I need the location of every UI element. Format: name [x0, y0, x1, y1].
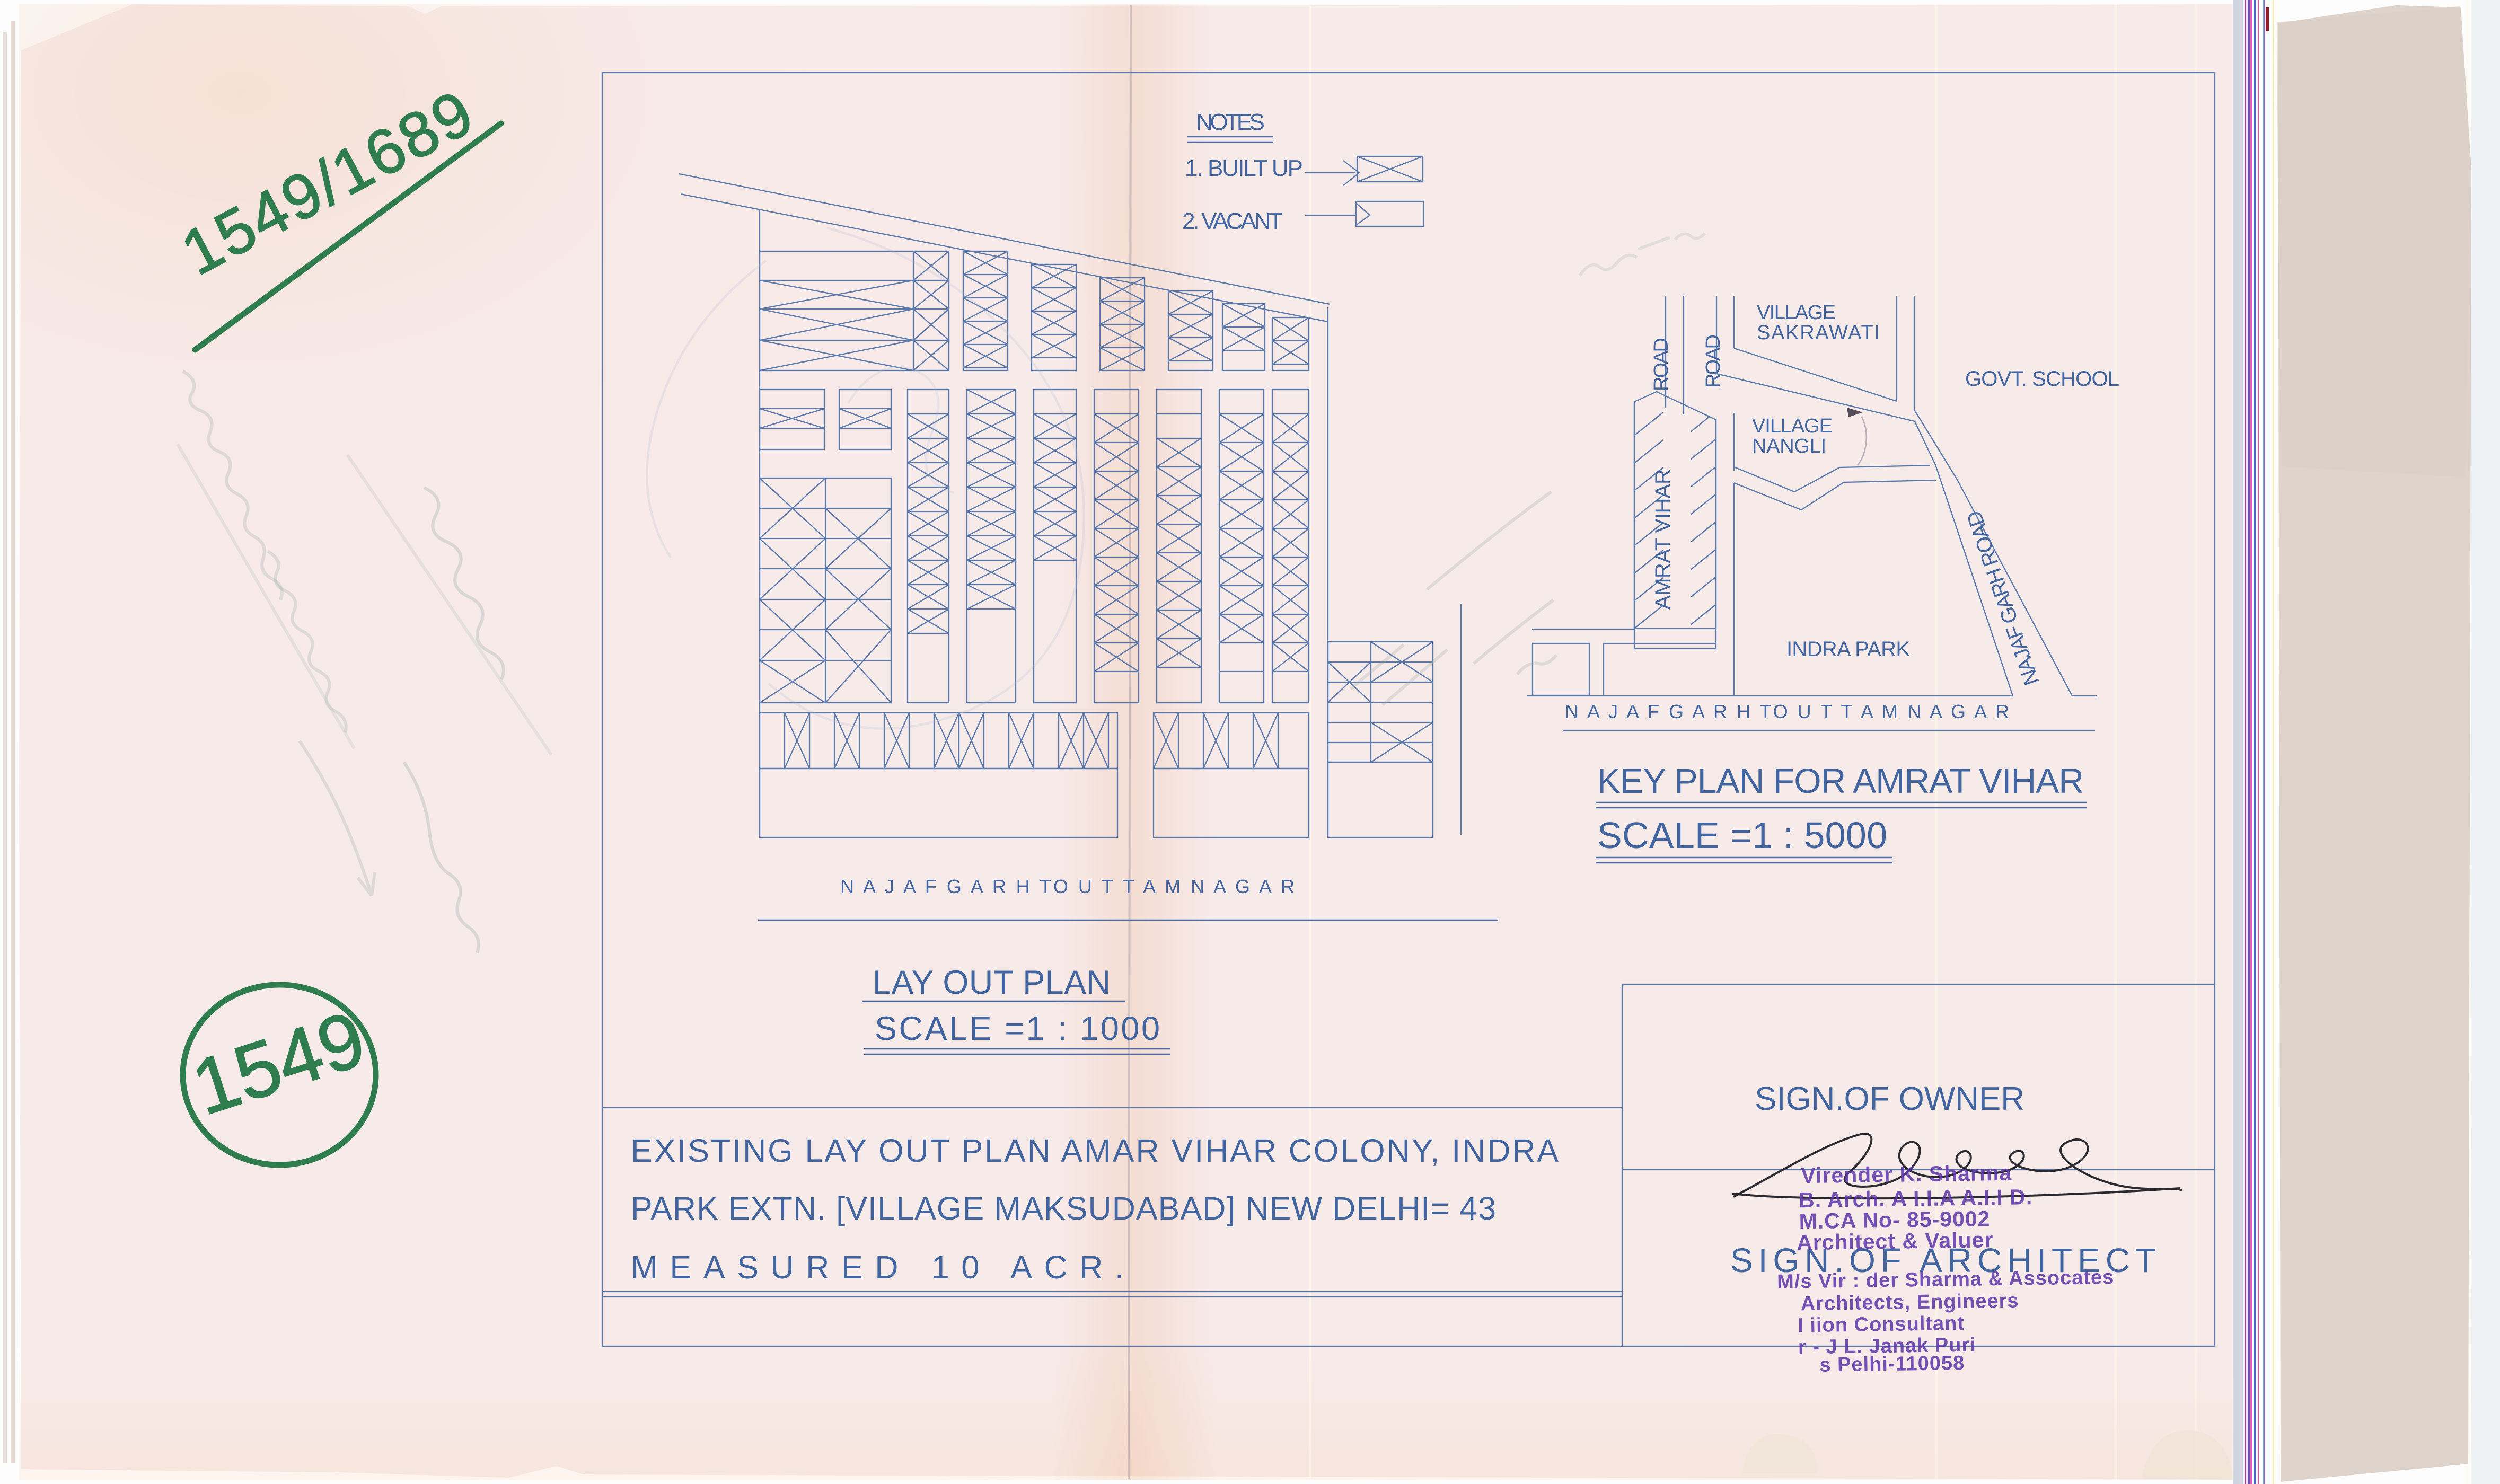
svg-text:M/s Vir : der Sharma & Assocat: M/s Vir : der Sharma & Assocates [1777, 1266, 2115, 1293]
svg-text:SCALE =1 : 5000: SCALE =1 : 5000 [1597, 815, 1887, 856]
svg-text:SCALE =1 : 1000: SCALE =1 : 1000 [875, 1010, 1160, 1047]
svg-text:LAY OUT PLAN: LAY OUT PLAN [873, 964, 1111, 1001]
svg-text:EXISTING LAY OUT PLAN AMAR VIH: EXISTING LAY OUT PLAN AMAR VIHAR COLONY,… [631, 1133, 1559, 1169]
svg-text:MEASURED 10 ACR.: MEASURED 10 ACR. [631, 1249, 1124, 1285]
svg-text:I iion Consultant: I iion Consultant [1798, 1312, 1965, 1337]
svg-text:VILLAGE: VILLAGE [1752, 415, 1833, 437]
svg-text:Virender K. Sharma: Virender K. Sharma [1801, 1161, 2012, 1188]
svg-text:KEY PLAN FOR AMRAT VIHAR: KEY PLAN FOR AMRAT VIHAR [1597, 761, 2084, 800]
svg-text:ROAD: ROAD [1650, 338, 1672, 391]
svg-text:SIGN.OF OWNER: SIGN.OF OWNER [1755, 1081, 2024, 1117]
svg-text:s Pelhi-110058: s Pelhi-110058 [1819, 1352, 1965, 1376]
svg-text:2. VACANT: 2. VACANT [1182, 208, 1283, 234]
svg-text:PARK EXTN. [VILLAGE MAKSUDABAD: PARK EXTN. [VILLAGE MAKSUDABAD] NEW DELH… [631, 1190, 1496, 1226]
svg-text:ROAD: ROAD [1702, 334, 1724, 388]
svg-text:1. BUILT UP: 1. BUILT UP [1185, 155, 1303, 181]
svg-text:SAKRAWATI: SAKRAWATI [1757, 322, 1880, 344]
svg-text:GOVT. SCHOOL: GOVT. SCHOOL [1965, 367, 2119, 391]
svg-text:AMRAT VIHAR: AMRAT VIHAR [1651, 469, 1675, 609]
svg-text:INDRA PARK: INDRA PARK [1786, 638, 1910, 661]
svg-text:NOTES: NOTES [1196, 109, 1265, 135]
svg-text:Architects, Engineers: Architects, Engineers [1801, 1289, 2019, 1315]
svg-text:Architect & Valuer: Architect & Valuer [1797, 1227, 1994, 1255]
svg-text:VILLAGE: VILLAGE [1757, 302, 1836, 324]
svg-text:NANGLI: NANGLI [1752, 435, 1826, 457]
